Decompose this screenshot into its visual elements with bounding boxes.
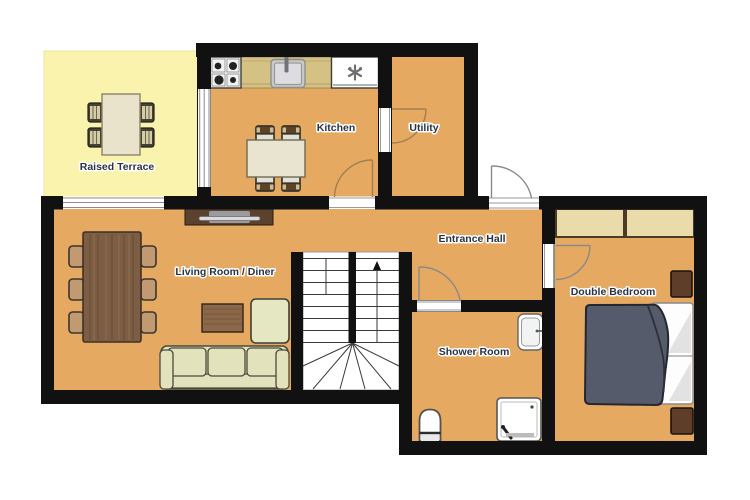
svg-text:Utility: Utility: [409, 122, 438, 134]
svg-text:Double Bedroom: Double Bedroom: [571, 286, 656, 298]
svg-text:Shower Room: Shower Room: [439, 346, 510, 358]
svg-text:Entrance Hall: Entrance Hall: [438, 233, 505, 245]
svg-text:Raised Terrace: Raised Terrace: [80, 161, 155, 173]
svg-text:Kitchen: Kitchen: [317, 122, 356, 134]
svg-text:Living Room / Diner: Living Room / Diner: [175, 266, 274, 278]
